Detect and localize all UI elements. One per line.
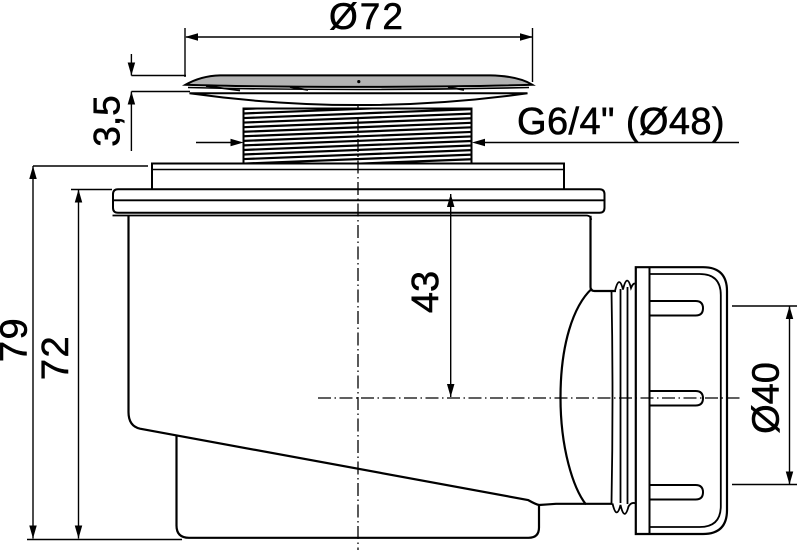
svg-text:G6/4" (Ø48): G6/4" (Ø48) xyxy=(517,101,725,143)
svg-text:Ø40: Ø40 xyxy=(746,362,788,434)
svg-text:3,5: 3,5 xyxy=(87,95,128,146)
svg-text:Ø72: Ø72 xyxy=(329,0,405,37)
svg-text:79: 79 xyxy=(0,317,36,362)
svg-text:43: 43 xyxy=(405,271,447,313)
svg-text:72: 72 xyxy=(35,335,77,380)
